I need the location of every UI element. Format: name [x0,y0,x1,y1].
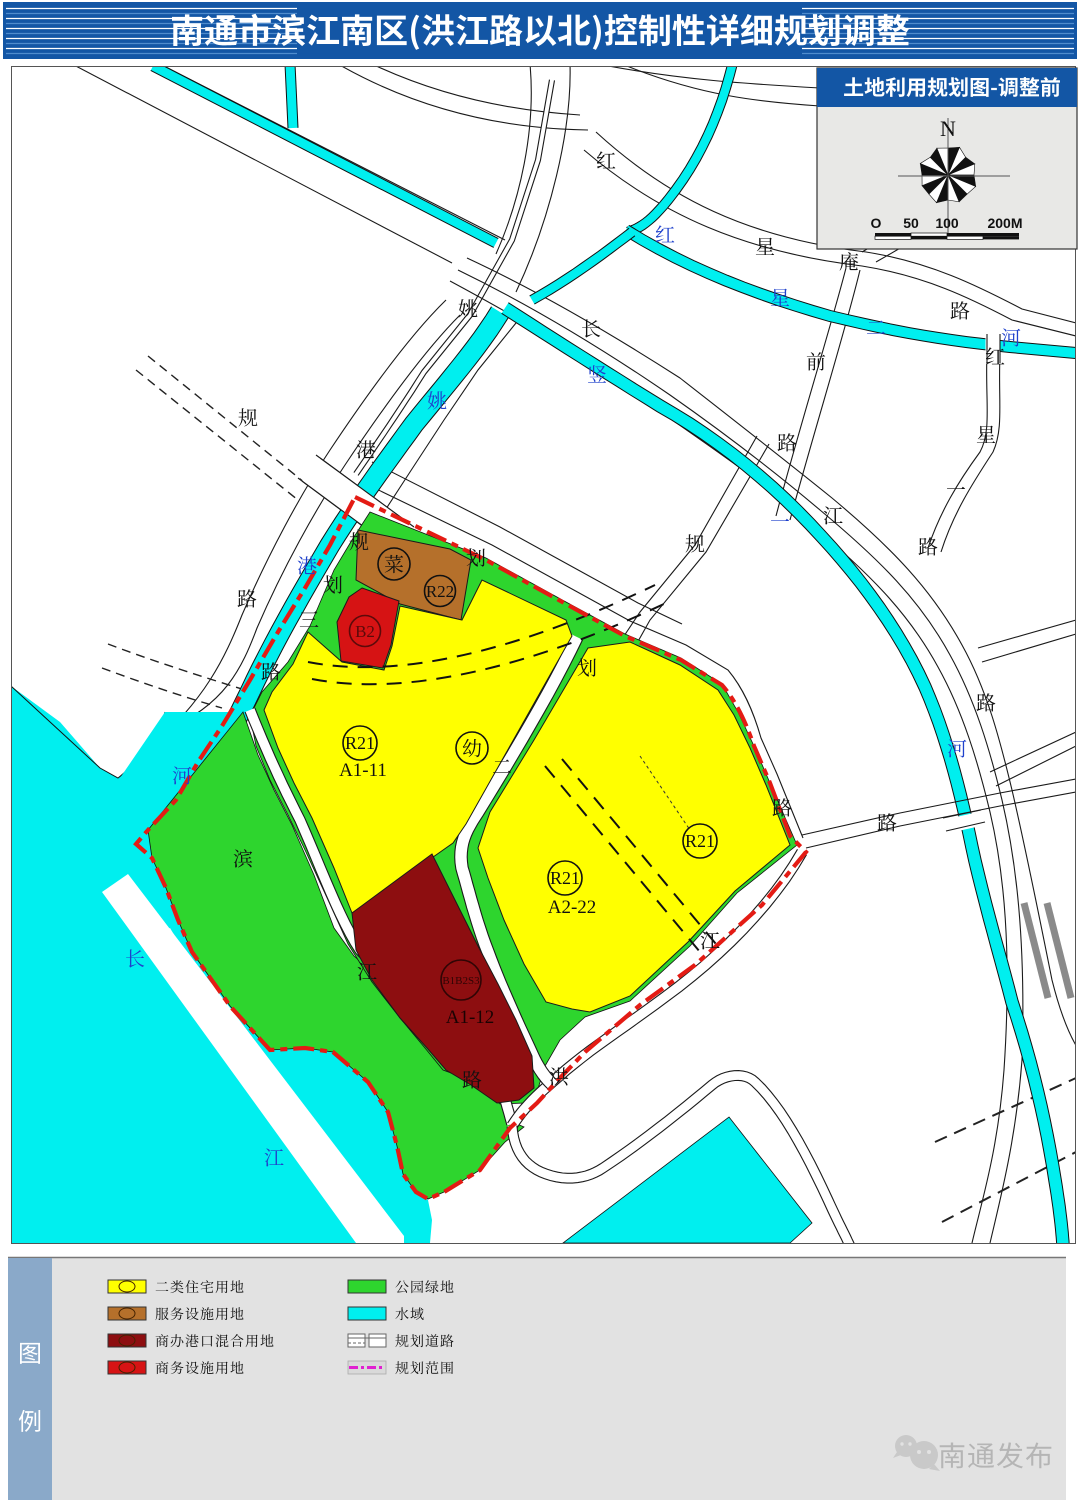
svg-text:B1B2S3: B1B2S3 [442,975,480,987]
svg-text:A1-11: A1-11 [339,760,387,781]
svg-text:R22: R22 [426,582,454,601]
svg-text:R21: R21 [685,831,715,851]
svg-text:A2-22: A2-22 [548,897,597,918]
svg-text:100: 100 [935,215,959,231]
svg-text:A1-12: A1-12 [446,1007,495,1028]
svg-text:O: O [871,215,882,231]
svg-text:R21: R21 [550,868,580,888]
svg-text:200M: 200M [987,215,1022,231]
svg-text:R21: R21 [345,733,375,753]
svg-text:B2: B2 [355,622,375,641]
svg-text:N: N [940,116,956,141]
svg-text:50: 50 [903,215,919,231]
